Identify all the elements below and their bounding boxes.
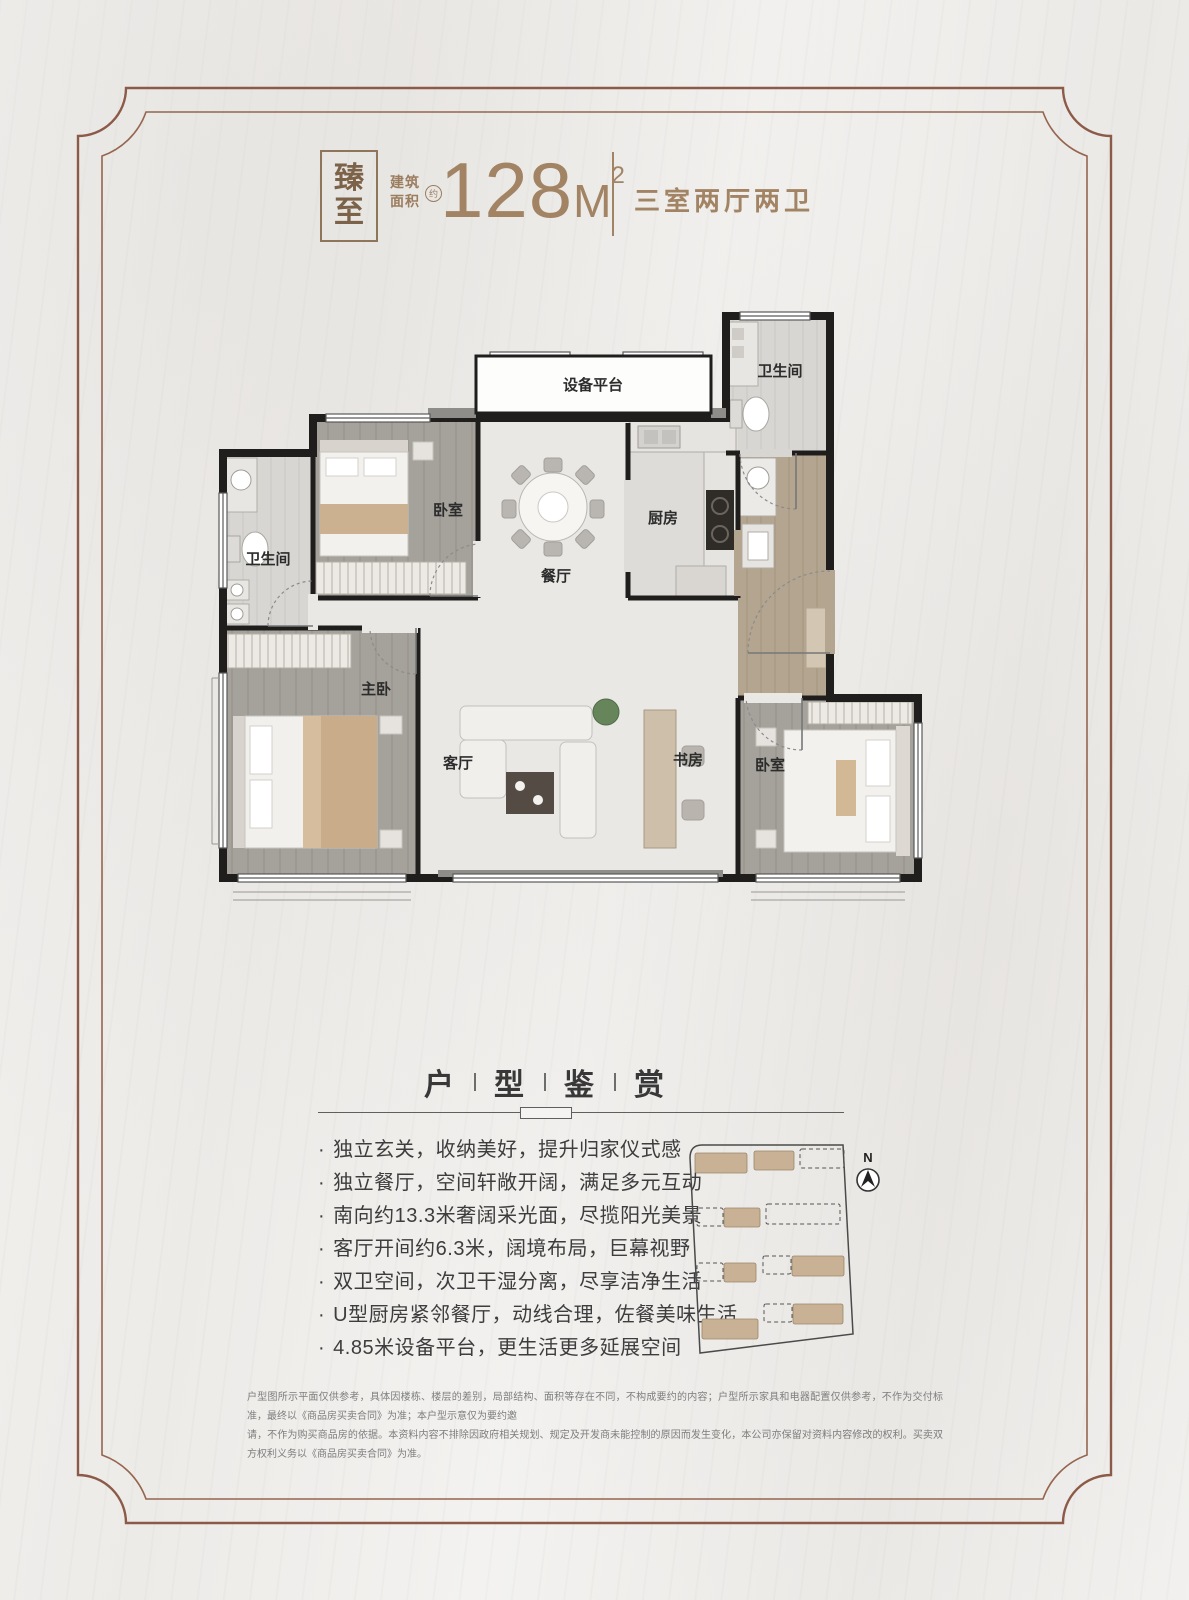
site-building xyxy=(792,1256,844,1276)
title-divider xyxy=(614,1073,616,1091)
room-label-bath-top: 卫生间 xyxy=(757,362,802,380)
area-value: 128M2 xyxy=(440,146,625,234)
room-label-equipment-platform: 设备平台 xyxy=(563,376,623,394)
room-label-bath-left: 卫生间 xyxy=(245,550,290,568)
title-divider xyxy=(474,1073,476,1091)
disclaimer: 户型图所示平面仅供参考，具体因楼栋、楼层的差别，局部结构、面积等存在不同，不构成… xyxy=(247,1388,943,1464)
site-building xyxy=(697,1263,723,1281)
layout-description: 三室两厅两卫 xyxy=(634,181,814,218)
room-label-kitchen: 厨房 xyxy=(648,509,678,527)
site-building xyxy=(724,1208,760,1227)
room-label-dining: 餐厅 xyxy=(541,567,571,585)
room-label-study: 书房 xyxy=(673,751,703,769)
site-building xyxy=(697,1208,723,1226)
floor-plan: 设备平台 卫生间 卧室 餐厅 厨房 卫生间 主卧 客厅 书房 卧室 xyxy=(208,308,932,960)
room-label-bedroom-right: 卧室 xyxy=(755,756,785,774)
brand-char-2: 至 xyxy=(334,197,364,229)
title-char: 户 xyxy=(424,1060,456,1104)
header-divider xyxy=(612,152,614,236)
room-label-bedroom-top: 卧室 xyxy=(433,501,463,519)
site-building xyxy=(695,1153,747,1173)
room-label-master-bedroom: 主卧 xyxy=(361,680,391,698)
site-building xyxy=(766,1204,840,1224)
site-building xyxy=(764,1304,792,1322)
site-plan: N xyxy=(650,1120,950,1370)
brand-char-1: 臻 xyxy=(334,163,364,195)
section-title: 户 型 鉴 赏 xyxy=(0,1060,1090,1104)
poster-page: { "colors":{"accent":"#a28464","brand":"… xyxy=(0,0,1189,1600)
site-building xyxy=(724,1263,756,1282)
section-rule-ornament xyxy=(520,1107,572,1119)
room-label-living: 客厅 xyxy=(442,754,473,772)
section-rule xyxy=(318,1112,844,1113)
site-building xyxy=(800,1149,844,1168)
brand-badge: 臻 至 xyxy=(320,150,378,242)
title-char: 赏 xyxy=(634,1060,666,1104)
site-building xyxy=(793,1304,843,1324)
compass-icon: N xyxy=(857,1150,879,1191)
site-building xyxy=(754,1151,794,1170)
title-char: 鉴 xyxy=(564,1060,596,1104)
site-building xyxy=(763,1256,791,1274)
disclaimer-line-2: 请，不作为购买商品房的依据。本资料内容不排除因政府相关规划、规定及开发商未能控制… xyxy=(247,1426,943,1464)
site-building xyxy=(702,1319,758,1339)
disclaimer-line-1: 户型图所示平面仅供参考，具体因楼栋、楼层的差别，局部结构、面积等存在不同，不构成… xyxy=(247,1388,943,1426)
site-buildings xyxy=(695,1149,844,1339)
north-label: N xyxy=(863,1150,872,1165)
area-label: 建筑 面积 xyxy=(390,173,420,211)
title-divider xyxy=(544,1073,546,1091)
title-char: 型 xyxy=(494,1060,526,1104)
